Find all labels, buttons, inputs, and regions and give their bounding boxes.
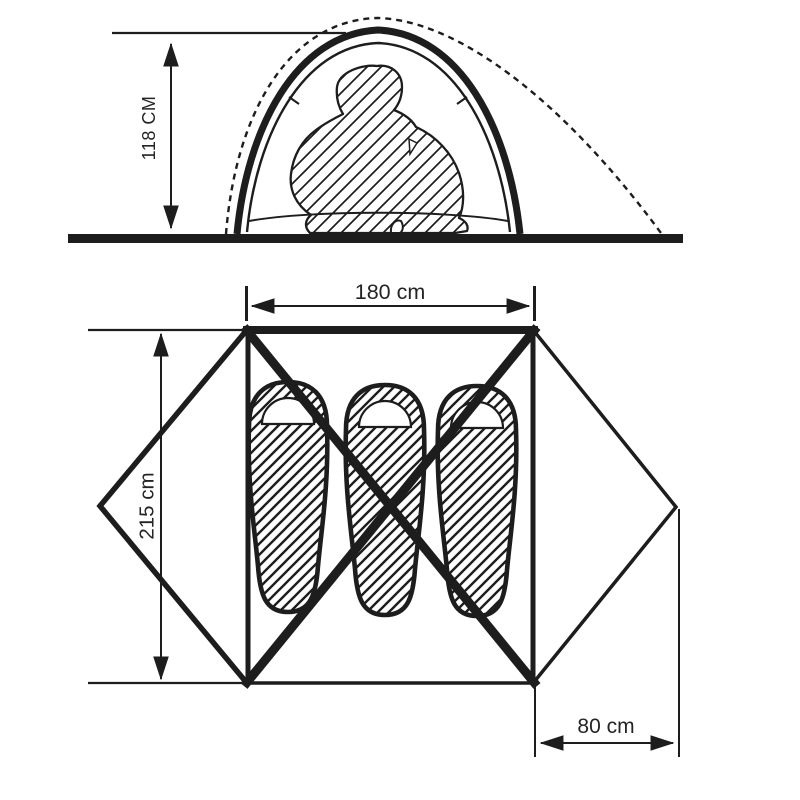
arch-seam-tick-right	[457, 97, 467, 104]
floor-plan-view: 180 cm 215 cm	[88, 280, 679, 757]
arch-seam-tick-left	[289, 97, 299, 104]
tent-dimension-diagram: 118 CM 180 cm	[0, 0, 800, 800]
seated-person-silhouette	[291, 66, 468, 233]
diagram-canvas: 118 CM 180 cm	[0, 0, 800, 800]
left-vestibule-outline	[100, 331, 246, 682]
right-vestibule-outline	[534, 331, 676, 682]
length-dimension-label: 215 cm	[135, 472, 158, 539]
vestibule-dimension-label: 80 cm	[577, 715, 634, 738]
width-dimension-label: 180 cm	[355, 280, 426, 304]
side-elevation-view: 118 CM	[68, 18, 683, 239]
height-dimension-label: 118 CM	[139, 96, 159, 161]
